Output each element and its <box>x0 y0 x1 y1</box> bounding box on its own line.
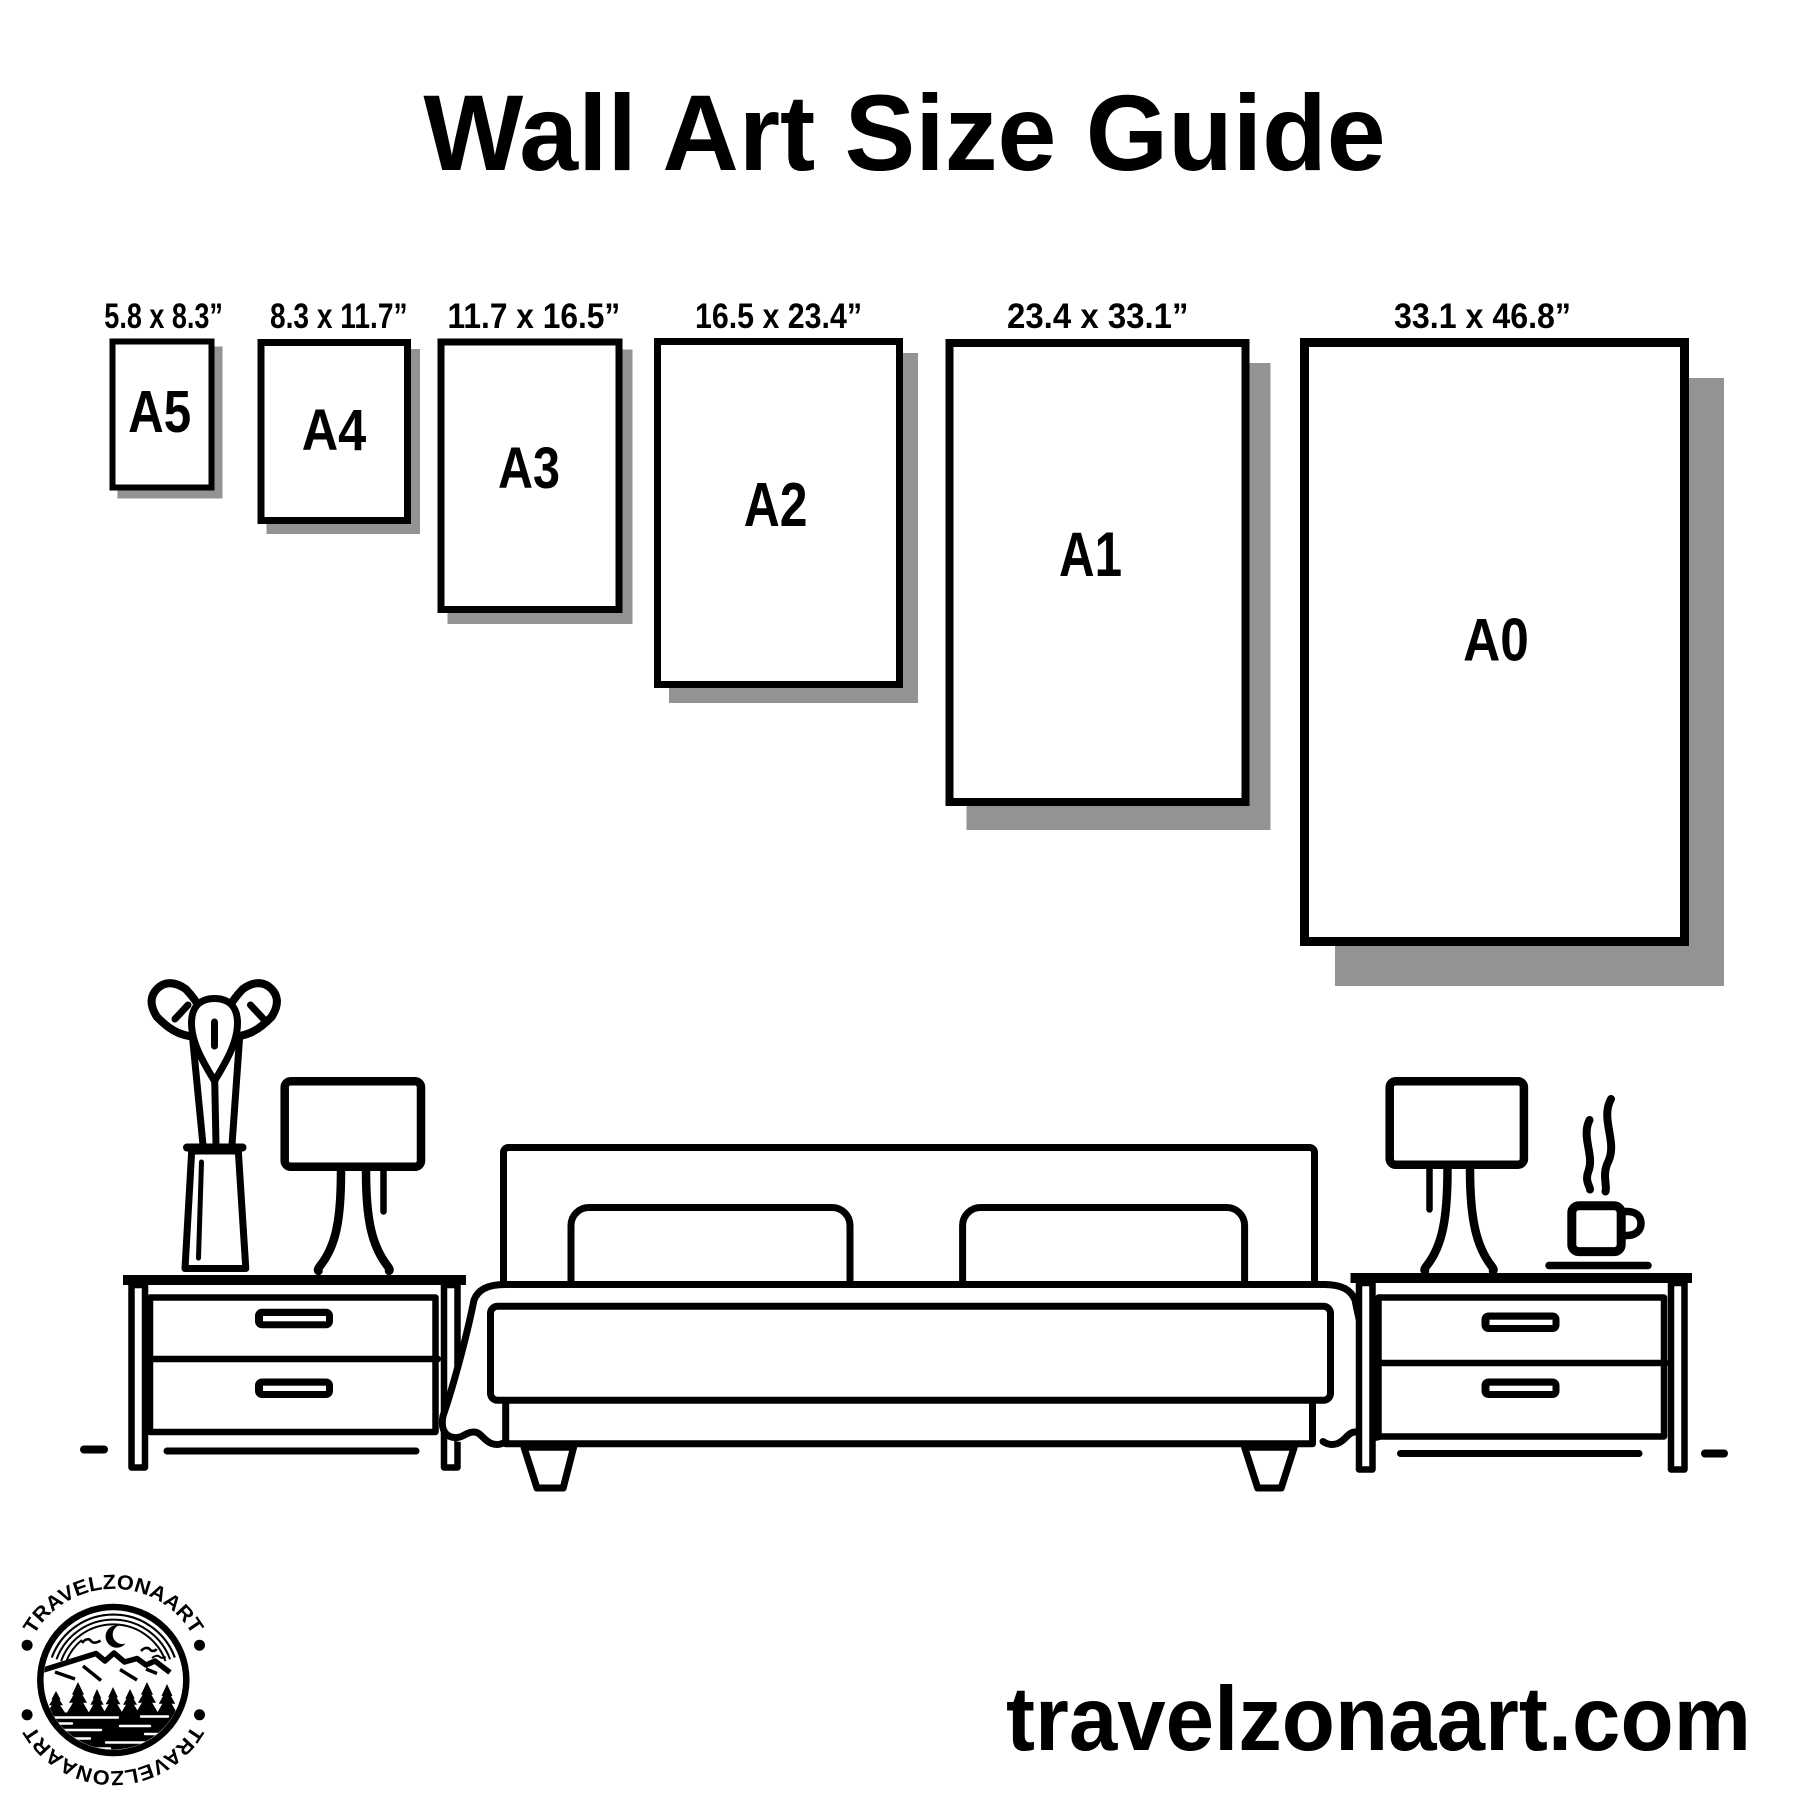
svg-text:33.1 x 46.8”: 33.1 x 46.8” <box>1394 298 1571 337</box>
svg-text:11.7 x 16.5”: 11.7 x 16.5” <box>448 298 621 337</box>
svg-text:A0: A0 <box>1463 606 1529 674</box>
svg-text:travelzonaart.com: travelzonaart.com <box>1006 1668 1751 1769</box>
svg-text:23.4 x 33.1”: 23.4 x 33.1” <box>1007 297 1188 336</box>
svg-text:A5: A5 <box>128 377 191 445</box>
svg-text:A2: A2 <box>744 470 808 539</box>
svg-text:A1: A1 <box>1059 520 1122 590</box>
svg-text:16.5 x 23.4”: 16.5 x 23.4” <box>695 296 862 336</box>
svg-text:8.3 x 11.7”: 8.3 x 11.7” <box>270 296 407 336</box>
svg-text:A4: A4 <box>302 398 367 463</box>
svg-text:5.8 x 8.3”: 5.8 x 8.3” <box>104 297 223 336</box>
svg-text:A3: A3 <box>498 436 560 501</box>
svg-text:Wall Art Size Guide: Wall Art Size Guide <box>423 72 1385 193</box>
